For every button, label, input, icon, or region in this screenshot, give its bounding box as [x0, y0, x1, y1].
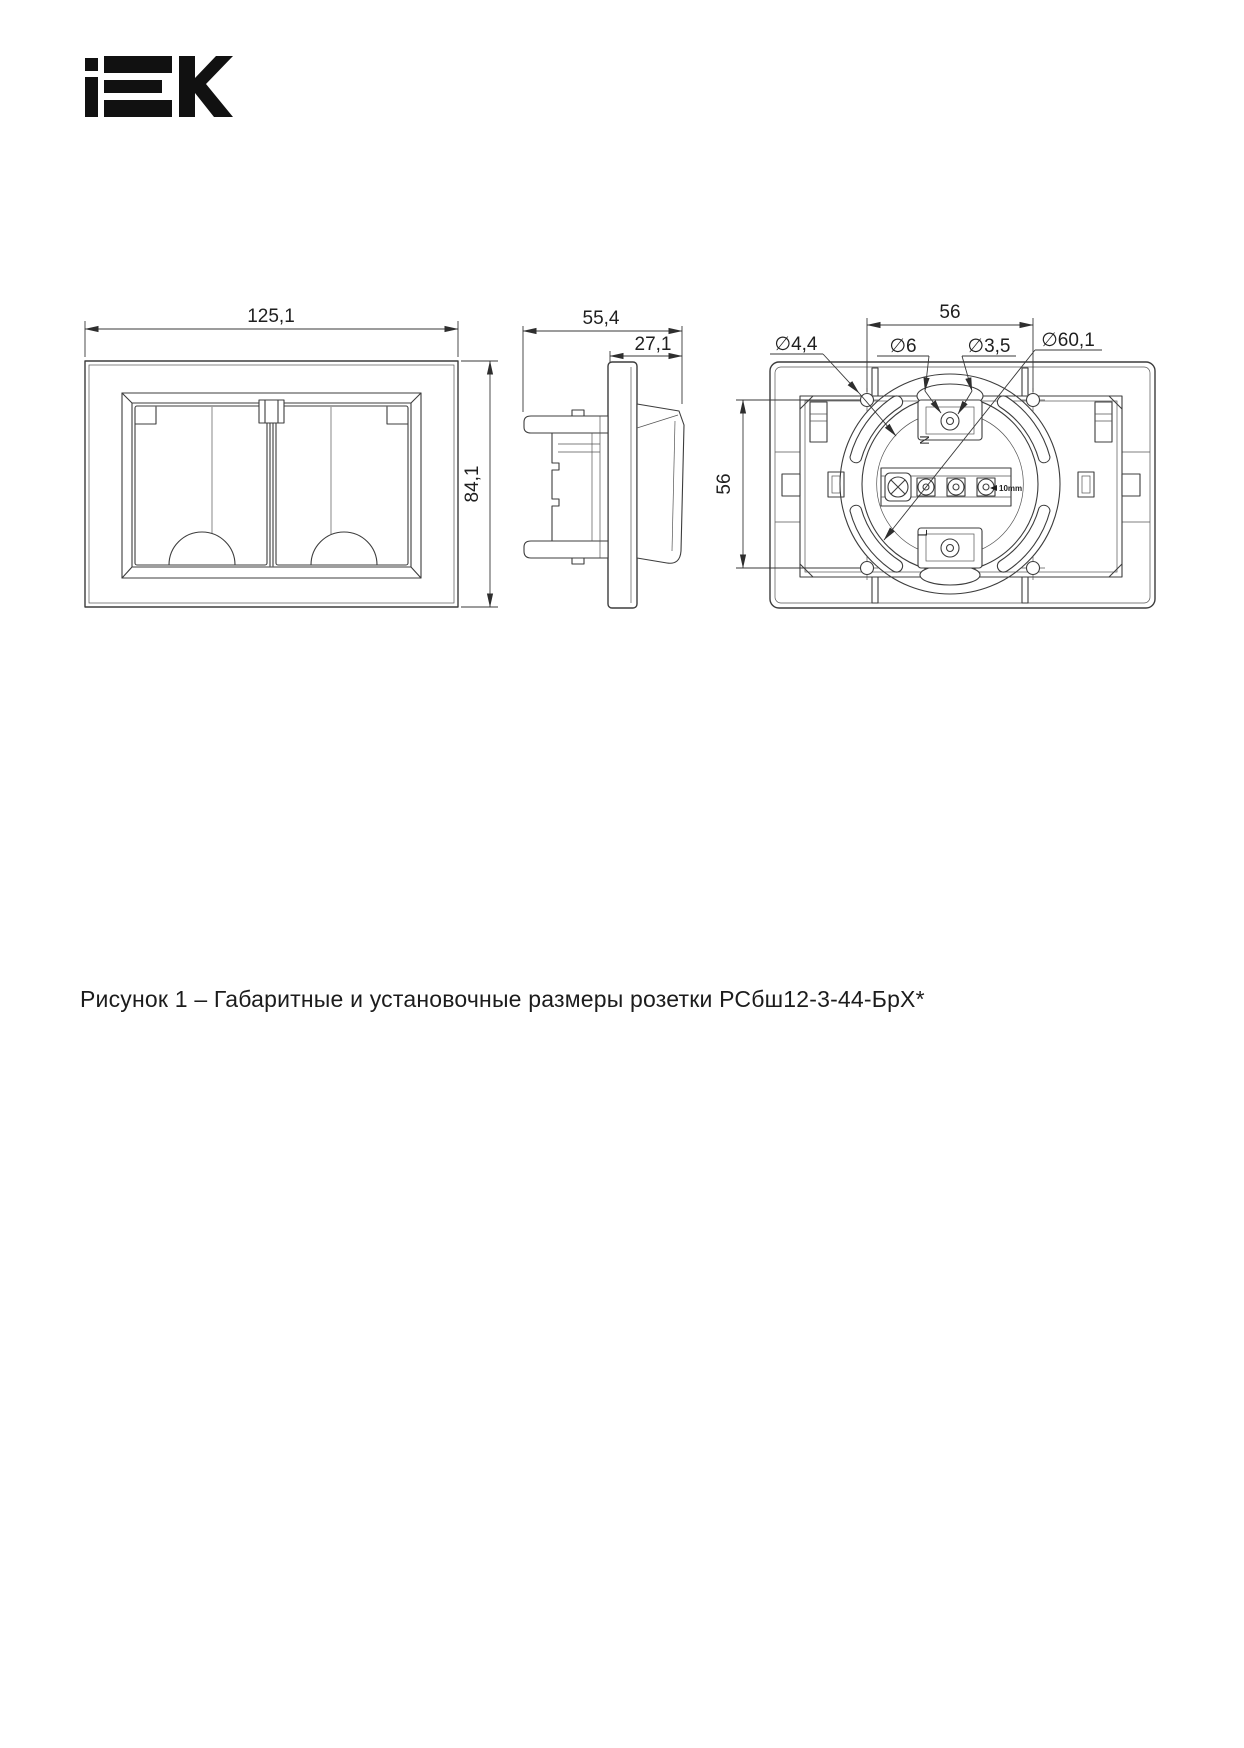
dia-support-ring-label: ∅60,1: [1041, 330, 1095, 351]
side-depth-dimension-label: 55,4: [583, 308, 620, 329]
front-center-tab: [259, 400, 284, 423]
terminal-block-top: [918, 400, 982, 440]
front-height-dimension: 84,1: [461, 361, 498, 607]
dia-cable-entry-label: ∅6: [889, 336, 916, 357]
strip-length-label: 10mm: [999, 484, 1022, 493]
side-bottom-clip: [572, 558, 584, 564]
technical-drawing: 125,1 84,1 55,4 27,1: [0, 0, 1244, 1748]
terminal-row: 10mm: [881, 468, 1022, 506]
front-width-dimension: 125,1: [85, 306, 458, 357]
terminal-n-label: N: [917, 435, 932, 444]
terminal-screw-2: [948, 479, 964, 495]
side-front-depth-dimension-label: 27,1: [635, 334, 672, 355]
side-top-flange: [524, 416, 608, 433]
front-width-dimension-label: 125,1: [247, 306, 295, 327]
mounting-hole-bottom-right: [1027, 562, 1040, 575]
side-depth-dimension: 55,4: [523, 308, 682, 412]
side-mechanism-profile: [524, 410, 608, 564]
side-lid-wedge: [637, 404, 684, 563]
back-hole-spacing-v-label: 56: [714, 473, 735, 494]
front-lid-right: [276, 406, 408, 565]
mounting-hole-top-right: [1027, 394, 1040, 407]
side-front-depth-dimension: 27,1: [610, 334, 682, 363]
back-hole-spacing-h-label: 56: [939, 302, 960, 323]
side-bottom-flange: [524, 541, 608, 558]
terminal-screw-3: [978, 479, 994, 495]
side-view: 55,4 27,1: [523, 308, 684, 608]
dia-screw-hole-label: ∅3,5: [968, 336, 1011, 357]
terminal-l-label: L: [915, 529, 930, 536]
mounting-hole-top-left: [861, 394, 874, 407]
side-top-clip: [572, 410, 584, 416]
mounting-hole-bottom-left: [861, 562, 874, 575]
front-view: 125,1 84,1: [85, 306, 498, 607]
front-height-dimension-label: 84,1: [462, 466, 483, 503]
document-page: 125,1 84,1 55,4 27,1: [0, 0, 1244, 1748]
figure-caption: Рисунок 1 – Габаритные и установочные ра…: [80, 986, 1040, 1013]
side-frame-plate: [608, 362, 637, 608]
back-view: 10mm N L: [714, 302, 1155, 608]
side-body: [552, 433, 608, 541]
dia-mounting-hole-label: ∅4,4: [775, 334, 818, 355]
front-lid-left: [135, 406, 267, 565]
